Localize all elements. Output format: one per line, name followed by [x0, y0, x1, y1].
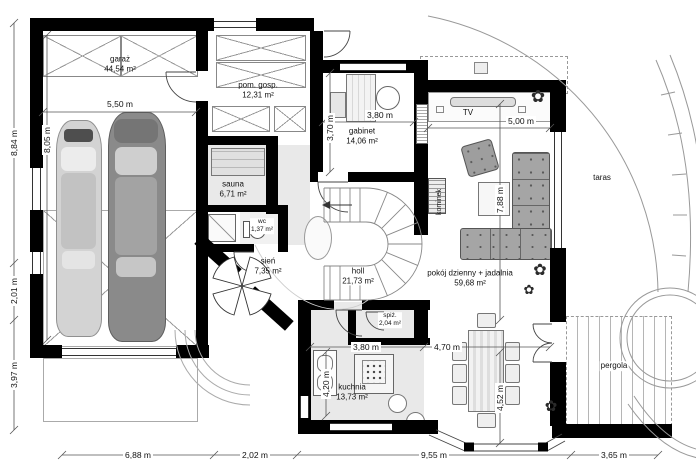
room-area: 13,73 m²: [336, 392, 368, 402]
dim-gabinet-width: 3,80 m: [365, 110, 395, 120]
room-area: 59,68 m²: [427, 278, 513, 288]
plant-icon: ✿: [531, 87, 545, 107]
dim-left-2: 2,01 m: [9, 276, 19, 306]
dim-left-1: 8,84 m: [9, 128, 19, 158]
dim-bottom-3: 9,55 m: [419, 450, 449, 460]
dim-kitchen-depth: 4,20 m: [321, 369, 331, 399]
dim-garage-depth: 8,05 m: [42, 125, 52, 155]
room-name: holl: [341, 266, 375, 276]
terrace-outline: [428, 16, 696, 458]
taras-text: taras: [593, 173, 611, 183]
room-area: 44,54 m²: [104, 64, 136, 74]
room-area: 12,31 m²: [238, 90, 278, 100]
dim-dining-width: 4,70 m: [432, 342, 462, 352]
dim-dining-depth: 4,52 m: [495, 383, 505, 413]
bay-window: [428, 426, 566, 451]
plant-icon: ✿: [533, 260, 546, 280]
plant-icon: ✿: [545, 397, 558, 415]
room-label-sauna: sauna 6,71 m²: [219, 179, 246, 198]
room-name: pom. gosp.: [238, 80, 278, 90]
room-label-pokoj: pokój dzienny + jadalnia 59,68 m²: [427, 268, 513, 287]
floor-plan: ✿ ✿ ✿ ✿ garaż 44,54 m² pom. gosp. 12,31 …: [0, 0, 696, 474]
dim-garage-width: 5,50 m: [105, 99, 135, 109]
dim-living-width: 5,00 m: [506, 116, 536, 126]
room-label-wc: wc 1,37 m²: [250, 218, 274, 234]
room-name: garaż: [104, 54, 136, 64]
entrance-porch-steps: [175, 330, 250, 405]
staircase: [255, 188, 422, 309]
dim-left-3: 3,97 m: [9, 360, 19, 390]
room-area: 7,35 m²: [254, 266, 281, 276]
room-label-holl: holl 21,73 m²: [341, 266, 375, 285]
room-label-pom-gosp: pom. gosp. 12,31 m²: [238, 80, 278, 99]
room-label-garaz: garaż 44,54 m²: [104, 54, 136, 73]
dim-gabinet-depth: 3,70 m: [325, 113, 335, 143]
room-label-sien: sień 7,35 m²: [254, 256, 281, 275]
dim-bottom-2: 2,02 m: [240, 450, 270, 460]
dim-bottom-4: 3,65 m: [599, 450, 629, 460]
tv-label: TV: [463, 108, 473, 118]
room-area: 6,71 m²: [219, 189, 246, 199]
tv-text: TV: [463, 108, 473, 118]
dim-living-depth: 7,88 m: [495, 185, 505, 215]
room-label-kuchnia: kuchnia 13,73 m²: [336, 382, 368, 401]
pergola-label: pergola: [600, 361, 629, 371]
room-name: wc: [250, 218, 274, 226]
room-name: spiż.: [378, 312, 402, 320]
room-area: 21,73 m²: [341, 276, 375, 286]
room-label-spiz: spiż. 2,04 m²: [378, 312, 402, 328]
pergola-text: pergola: [600, 361, 629, 371]
taras-label: taras: [593, 173, 611, 183]
room-name: pokój dzienny + jadalnia: [427, 268, 513, 278]
room-name: sień: [254, 256, 281, 266]
room-label-gabinet: gabinet 14,06 m²: [346, 126, 378, 145]
room-area: 2,04 m²: [378, 320, 402, 328]
room-area: 1,37 m²: [250, 226, 274, 234]
room-name: kuchnia: [336, 382, 368, 392]
room-name: gabinet: [346, 126, 378, 136]
plant-icon: ✿: [524, 282, 535, 298]
dim-kitchen-width: 3,80 m: [351, 342, 381, 352]
room-name: sauna: [219, 179, 246, 189]
dim-bottom-1: 6,88 m: [123, 450, 153, 460]
room-area: 14,06 m²: [346, 136, 378, 146]
kominek-text: kominek: [436, 189, 444, 215]
kominek-label: kominek: [436, 189, 444, 215]
